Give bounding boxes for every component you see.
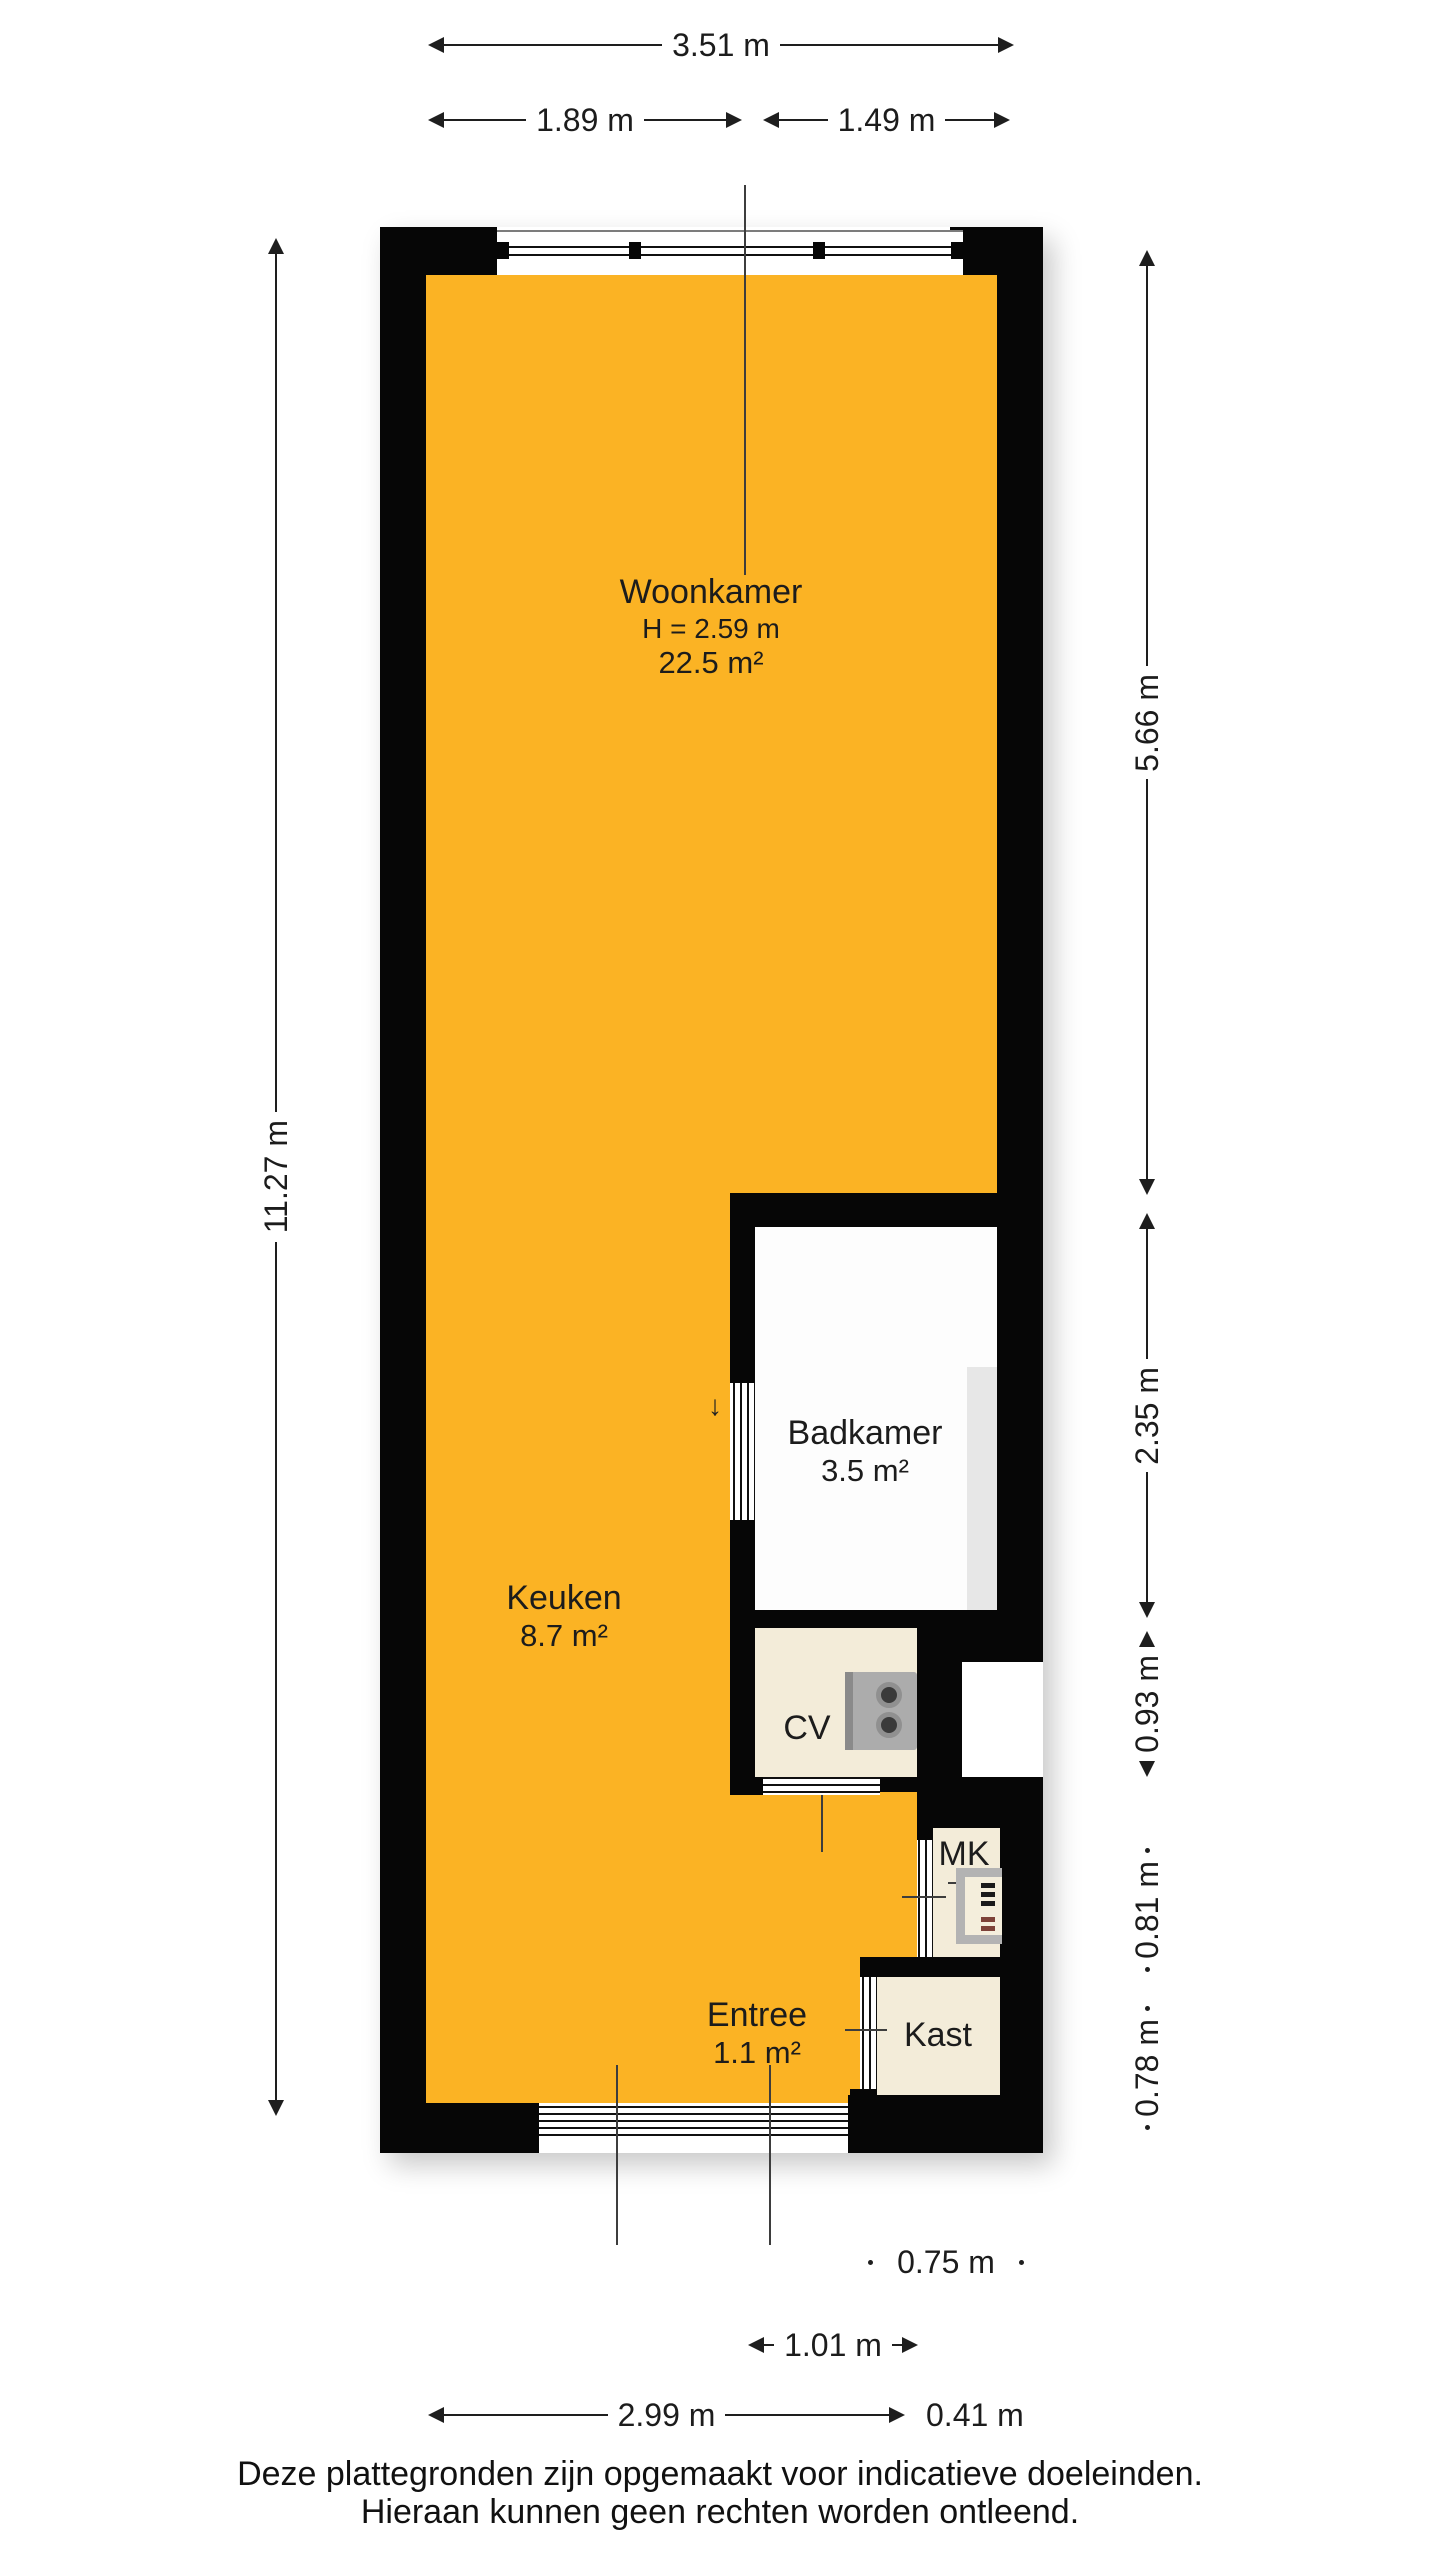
arrowhead-icon — [1139, 1179, 1155, 1195]
dim-right-078: 0.78 m — [1125, 2006, 1169, 2152]
dim-line — [945, 119, 994, 121]
arrowhead-icon — [763, 112, 779, 128]
arrowhead-icon — [998, 37, 1014, 53]
window-glass-line-2 — [505, 254, 957, 256]
arrowhead-icon — [1139, 1602, 1155, 1618]
label-keuken: Keuken 8.7 m² — [414, 1578, 714, 1655]
kast-name: Kast — [863, 2015, 1013, 2055]
dim-right-566: 5.66 m — [1125, 250, 1169, 1195]
dim-right-081: 0.81 m — [1125, 1848, 1169, 1983]
window-post-1 — [497, 242, 509, 259]
dim-line — [644, 119, 726, 121]
disclaimer-line-1: Deze plattegronden zijn opgemaakt voor i… — [0, 2455, 1440, 2494]
dim-bottom-101: 1.01 m — [748, 2327, 918, 2363]
wall-cv-left — [730, 1628, 755, 1795]
dim-line — [764, 2344, 774, 2346]
cv-door — [763, 1777, 880, 1795]
floorplan-page: ↓ Woonkamer H = 2.59 m 22.5 m² Keuken 8.… — [0, 0, 1440, 2560]
mk-door-swing-line — [902, 1896, 946, 1898]
dim-line — [444, 44, 662, 46]
dim-line — [275, 254, 277, 1112]
cv-door-swing-line — [821, 1795, 823, 1852]
dim-bottom-299: 2.99 m — [428, 2397, 905, 2433]
dim-bottom-101-label: 1.01 m — [774, 2327, 892, 2363]
label-mk: MK — [914, 1834, 1014, 1874]
dim-right-235-label: 2.35 m — [1129, 1359, 1166, 1473]
dim-line — [892, 2344, 902, 2346]
arrowhead-icon — [428, 112, 444, 128]
dim-line — [779, 119, 828, 121]
mk-name: MK — [914, 1834, 1014, 1874]
dim-right-235: 2.35 m — [1125, 1213, 1169, 1618]
mk-dash-2 — [981, 1892, 995, 1897]
dim-dot — [868, 2260, 873, 2265]
woonkamer-ceiling-height: H = 2.59 m — [511, 612, 911, 645]
wall-badkamer-bottom-right — [953, 1610, 1043, 1662]
dim-line — [444, 2414, 608, 2416]
arrowhead-icon — [268, 238, 284, 254]
dim-right-093: 0.93 m — [1125, 1631, 1169, 1785]
window-outer-line — [497, 230, 963, 232]
wall-mk-bottom — [860, 1957, 1010, 1977]
mk-dash-red-1 — [981, 1917, 995, 1922]
dim-dot — [1019, 2260, 1024, 2265]
arrowhead-icon — [902, 2337, 918, 2353]
front-door — [539, 2106, 848, 2138]
wall-cv-right — [917, 1628, 962, 1777]
badkamer-area: 3.5 m² — [715, 1453, 1015, 1490]
wall-bottom-left — [380, 2103, 539, 2153]
dim-line — [725, 2414, 889, 2416]
dim-right-566-label: 5.66 m — [1129, 666, 1166, 780]
woonkamer-area: 22.5 m² — [511, 645, 911, 682]
dim-right-081-label: 0.81 m — [1129, 1853, 1166, 1967]
bottom-tick-right — [769, 2065, 771, 2245]
dim-line — [444, 119, 526, 121]
dim-right-093-label: 0.93 m — [1129, 1647, 1166, 1761]
keuken-area: 8.7 m² — [414, 1618, 714, 1655]
mk-meter-cabinet-icon — [956, 1868, 1002, 1944]
arrowhead-icon — [994, 112, 1010, 128]
dim-bottom-075-label: 0.75 m — [887, 2244, 1005, 2280]
window-band — [497, 230, 963, 275]
arrowhead-icon — [1139, 1761, 1155, 1777]
woonkamer-name: Woonkamer — [511, 572, 911, 612]
wall-left — [380, 227, 426, 2153]
dim-right-078-label: 0.78 m — [1129, 2011, 1166, 2125]
dim-line — [1146, 266, 1148, 666]
dim-line — [275, 1242, 277, 2100]
dim-line — [1146, 1229, 1148, 1359]
dim-bottom-041-label: 0.41 m — [916, 2397, 1034, 2433]
dim-dot — [1145, 1967, 1150, 1972]
label-kast: Kast — [863, 2015, 1013, 2055]
dim-left-total: 11.27 m — [254, 238, 298, 2116]
dim-top-right: 1.49 m — [763, 102, 1010, 138]
dim-top-right-label: 1.49 m — [828, 102, 946, 138]
top-split-line — [744, 185, 746, 575]
dim-top-total: 3.51 m — [428, 27, 1014, 63]
arrowhead-icon — [428, 37, 444, 53]
label-cv: CV — [757, 1708, 857, 1748]
dim-bottom-041: 0.41 m — [916, 2397, 1046, 2433]
wall-mk-top-b — [917, 1777, 1043, 1828]
wall-mk-top-a — [880, 1777, 917, 1792]
dim-left-total-label: 11.27 m — [258, 1112, 295, 1241]
dim-line — [1146, 1472, 1148, 1602]
arrowhead-icon — [268, 2100, 284, 2116]
arrowhead-icon — [428, 2407, 444, 2423]
label-entree: Entree 1.1 m² — [657, 1995, 857, 2072]
bottom-tick-left — [616, 2065, 618, 2245]
dim-top-left-label: 1.89 m — [526, 102, 644, 138]
mk-dash-3 — [981, 1901, 995, 1906]
dim-top-total-label: 3.51 m — [662, 27, 780, 63]
arrowhead-icon — [1139, 1631, 1155, 1647]
wall-cv-bottom-left — [730, 1777, 763, 1795]
dim-line — [1146, 779, 1148, 1179]
dim-line — [780, 44, 998, 46]
label-woonkamer: Woonkamer H = 2.59 m 22.5 m² — [511, 572, 911, 682]
wall-mk-door-jamb — [917, 1792, 933, 1840]
entree-name: Entree — [657, 1995, 857, 2035]
disclaimer-line-2: Hieraan kunnen geen rechten worden ontle… — [0, 2493, 1440, 2532]
dim-bottom-299-label: 2.99 m — [608, 2397, 726, 2433]
arrowhead-icon — [1139, 1213, 1155, 1229]
cv-name: CV — [757, 1708, 857, 1748]
wall-badkamer-top — [730, 1193, 1043, 1227]
mk-dash-red-2 — [981, 1926, 995, 1931]
arrowhead-icon — [889, 2407, 905, 2423]
arrowhead-icon — [748, 2337, 764, 2353]
entree-area: 1.1 m² — [657, 2035, 857, 2072]
label-badkamer: Badkamer 3.5 m² — [715, 1413, 1015, 1490]
mk-dash-1 — [981, 1883, 995, 1888]
arrowhead-icon — [1139, 250, 1155, 266]
dim-bottom-075: 0.75 m — [868, 2244, 1024, 2280]
dim-dot — [1145, 2125, 1150, 2130]
wall-badkamer-left-upper — [730, 1227, 755, 1383]
wall-bottom-right — [848, 2095, 1043, 2153]
window-post-3 — [813, 242, 825, 259]
dim-top-left: 1.89 m — [428, 102, 742, 138]
floor-woonkamer — [426, 275, 997, 1193]
arrowhead-icon — [726, 112, 742, 128]
keuken-name: Keuken — [414, 1578, 714, 1618]
window-post-2 — [629, 242, 641, 259]
cv-boiler-knob-1 — [876, 1682, 902, 1708]
badkamer-name: Badkamer — [715, 1413, 1015, 1453]
cv-boiler-knob-2 — [876, 1712, 902, 1738]
window-post-4 — [951, 242, 963, 259]
floor-entree-arm — [860, 1792, 917, 1960]
window-glass-line-1 — [505, 246, 957, 248]
